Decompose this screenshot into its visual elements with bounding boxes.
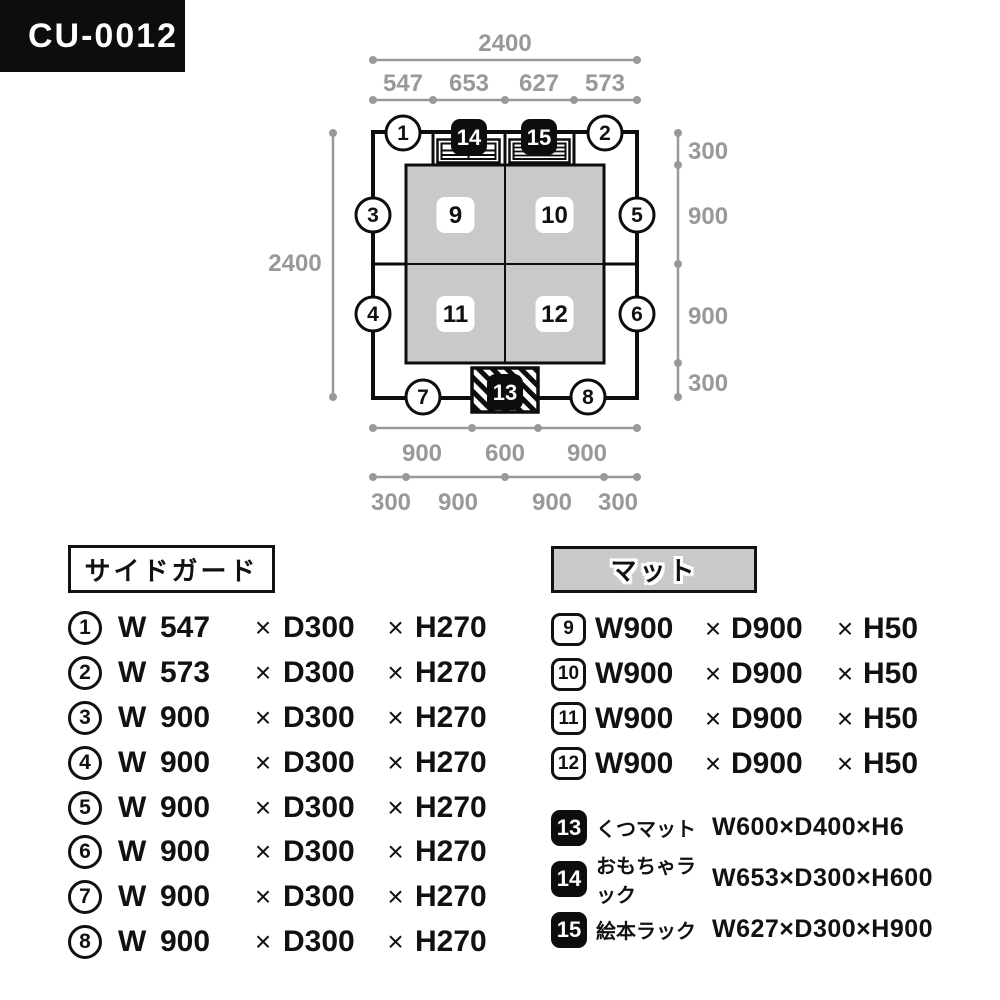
sideguard-list: 1 W 547 × D300 × H270 2 W 573 × D300 × H… (68, 606, 487, 964)
w-value: 900 (160, 925, 243, 959)
svg-text:14: 14 (457, 125, 482, 150)
item-number-circle: 4 (68, 746, 102, 780)
dim-label: 653 (449, 70, 489, 97)
multiply-sign: × (376, 702, 415, 734)
item-number-black-square: 15 (551, 912, 587, 948)
mat-item-12: 12 W900 × D900 × H50 (551, 741, 918, 786)
d-value: D900 (731, 702, 827, 736)
multiply-sign: × (376, 612, 415, 644)
dim-dots (369, 473, 641, 481)
sideguard-item-4: 4 W 900 × D300 × H270 (68, 740, 487, 785)
item-number-circle: 7 (68, 880, 102, 914)
h-value: H270 (415, 656, 487, 690)
sideguard-legend-title: サイドガード (84, 551, 258, 588)
mat-item-11: 11 W900 × D900 × H50 (551, 697, 918, 742)
item-number-square: 12 (551, 747, 586, 780)
floor-plan-diagram: 2400 547 653 627 573 2400 300 900 900 30… (0, 0, 1000, 530)
multiply-sign: × (827, 748, 863, 780)
mat-item-9: 9 W900 × D900 × H50 (551, 607, 918, 652)
w-value: 900 (160, 791, 243, 825)
multiply-sign: × (376, 836, 415, 868)
item-number-circle: 1 (68, 611, 102, 645)
h-value: H270 (415, 835, 487, 869)
dim-label: 900 (688, 203, 728, 230)
accessory-badge-14: 14 (451, 119, 487, 155)
dim-label: 600 (485, 440, 525, 467)
guard-circle-5: 5 (620, 198, 654, 232)
multiply-sign: × (376, 881, 415, 913)
guard-circle-2: 2 (588, 116, 622, 150)
multiply-sign: × (243, 702, 283, 734)
w-value: 900 (160, 746, 243, 780)
w-value: 573 (160, 656, 243, 690)
svg-text:2: 2 (599, 122, 611, 145)
d-value: D900 (731, 747, 827, 781)
svg-text:11: 11 (443, 301, 468, 328)
accessory-item-13: 13 くつマット W600×D400×H6 (551, 802, 933, 853)
dim-label-left-total: 2400 (268, 250, 321, 277)
multiply-sign: × (695, 658, 731, 690)
item-number-square: 11 (551, 702, 586, 735)
svg-text:4: 4 (367, 303, 379, 326)
w-label: W (118, 835, 160, 869)
svg-text:7: 7 (417, 386, 429, 409)
h-value: H270 (415, 701, 487, 735)
accessory-size: W653×D300×H600 (712, 864, 933, 893)
multiply-sign: × (243, 657, 283, 689)
sideguard-item-5: 5 W 900 × D300 × H270 (68, 785, 487, 830)
sideguard-item-8: 8 W 900 × D300 × H270 (68, 920, 487, 965)
w-value: W900 (595, 657, 695, 691)
dim-dot (633, 56, 641, 64)
item-number-circle: 3 (68, 701, 102, 735)
w-value: 900 (160, 880, 243, 914)
h-value: H270 (415, 746, 487, 780)
item-number-square: 10 (551, 658, 586, 691)
accessory-item-14: 14 おもちゃラック W653×D300×H600 (551, 853, 933, 904)
multiply-sign: × (827, 613, 863, 645)
h-value: H270 (415, 611, 487, 645)
dim-label: 300 (371, 489, 411, 516)
svg-text:6: 6 (631, 303, 643, 326)
dim-label: 900 (438, 489, 478, 516)
w-label: W (118, 656, 160, 690)
multiply-sign: × (243, 836, 283, 868)
accessory-size: W600×D400×H6 (712, 813, 904, 842)
mat-label-11: 11 (437, 296, 475, 332)
svg-text:9: 9 (449, 202, 462, 229)
d-value: D900 (731, 612, 827, 646)
dim-label: 900 (688, 303, 728, 330)
w-label: W (118, 925, 160, 959)
guard-circle-4: 4 (356, 297, 390, 331)
svg-text:1: 1 (397, 122, 409, 145)
dim-label: 900 (532, 489, 572, 516)
dim-label: 547 (383, 70, 423, 97)
multiply-sign: × (695, 703, 731, 735)
d-value: D300 (283, 656, 376, 690)
sideguard-item-7: 7 W 900 × D300 × H270 (68, 875, 487, 920)
d-value: D300 (283, 880, 376, 914)
w-value: W900 (595, 702, 695, 736)
accessory-list: 13 くつマット W600×D400×H6 14 おもちゃラック W653×D3… (551, 802, 933, 955)
svg-text:8: 8 (582, 386, 594, 409)
dim-label: 300 (688, 370, 728, 397)
mat-label-12: 12 (536, 296, 574, 332)
mat-legend-title: マット (610, 551, 697, 588)
guard-circle-3: 3 (356, 198, 390, 232)
multiply-sign: × (243, 612, 283, 644)
item-number-circle: 5 (68, 791, 102, 825)
mat-legend-header: マット (551, 546, 757, 593)
sideguard-item-3: 3 W 900 × D300 × H270 (68, 696, 487, 741)
sideguard-item-2: 2 W 573 × D300 × H270 (68, 651, 487, 696)
item-number-black-square: 14 (551, 861, 587, 897)
item-number-square: 9 (551, 613, 586, 646)
dim-dot (369, 56, 377, 64)
accessory-item-15: 15 絵本ラック W627×D300×H900 (551, 904, 933, 955)
dim-label: 300 (688, 138, 728, 165)
svg-text:10: 10 (541, 202, 568, 229)
sideguard-item-6: 6 W 900 × D300 × H270 (68, 830, 487, 875)
w-value: 900 (160, 835, 243, 869)
multiply-sign: × (243, 881, 283, 913)
sideguard-item-1: 1 W 547 × D300 × H270 (68, 606, 487, 651)
accessory-badge-13: 13 (487, 374, 523, 410)
w-value: 547 (160, 611, 243, 645)
guard-circle-8: 8 (571, 380, 605, 414)
h-value: H50 (863, 747, 918, 781)
dim-label: 573 (585, 70, 625, 97)
item-number-circle: 6 (68, 835, 102, 869)
multiply-sign: × (376, 792, 415, 824)
accessory-badge-15: 15 (521, 119, 557, 155)
item-number-circle: 8 (68, 925, 102, 959)
multiply-sign: × (243, 792, 283, 824)
d-value: D300 (283, 611, 376, 645)
accessory-name: くつマット (596, 813, 712, 842)
multiply-sign: × (376, 747, 415, 779)
h-value: H270 (415, 791, 487, 825)
guard-circle-1: 1 (386, 116, 420, 150)
multiply-sign: × (695, 748, 731, 780)
d-value: D300 (283, 791, 376, 825)
h-value: H50 (863, 702, 918, 736)
item-number-circle: 2 (68, 656, 102, 690)
w-label: W (118, 611, 160, 645)
d-value: D300 (283, 701, 376, 735)
item-number-black-square: 13 (551, 810, 587, 846)
dim-label: 300 (598, 489, 638, 516)
w-value: 900 (160, 701, 243, 735)
guard-circle-7: 7 (406, 380, 440, 414)
w-value: W900 (595, 747, 695, 781)
multiply-sign: × (827, 658, 863, 690)
h-value: H270 (415, 925, 487, 959)
multiply-sign: × (376, 926, 415, 958)
accessory-size: W627×D300×H900 (712, 915, 933, 944)
dim-label: 900 (567, 440, 607, 467)
w-label: W (118, 880, 160, 914)
dim-label: 627 (519, 70, 559, 97)
svg-text:12: 12 (541, 301, 568, 328)
h-value: H270 (415, 880, 487, 914)
h-value: H50 (863, 657, 918, 691)
accessory-name: おもちゃラック (596, 850, 712, 908)
svg-text:15: 15 (527, 125, 551, 150)
multiply-sign: × (695, 613, 731, 645)
sideguard-legend-header: サイドガード (68, 545, 275, 593)
accessory-name: 絵本ラック (596, 915, 712, 944)
svg-text:13: 13 (493, 380, 517, 405)
d-value: D300 (283, 746, 376, 780)
w-value: W900 (595, 612, 695, 646)
mat-label-10: 10 (536, 197, 574, 233)
guard-circle-6: 6 (620, 297, 654, 331)
dim-dot (329, 393, 337, 401)
multiply-sign: × (243, 747, 283, 779)
d-value: D300 (283, 835, 376, 869)
svg-text:3: 3 (367, 204, 379, 227)
d-value: D900 (731, 657, 827, 691)
mat-label-9: 9 (437, 197, 475, 233)
multiply-sign: × (827, 703, 863, 735)
w-label: W (118, 791, 160, 825)
dim-dot (329, 129, 337, 137)
w-label: W (118, 701, 160, 735)
h-value: H50 (863, 612, 918, 646)
d-value: D300 (283, 925, 376, 959)
multiply-sign: × (243, 926, 283, 958)
mat-item-10: 10 W900 × D900 × H50 (551, 652, 918, 697)
multiply-sign: × (376, 657, 415, 689)
mat-list: 9 W900 × D900 × H50 10 W900 × D900 × H50… (551, 607, 918, 786)
svg-text:5: 5 (631, 204, 643, 227)
dim-label-top-total: 2400 (478, 30, 531, 57)
dim-label: 900 (402, 440, 442, 467)
w-label: W (118, 746, 160, 780)
